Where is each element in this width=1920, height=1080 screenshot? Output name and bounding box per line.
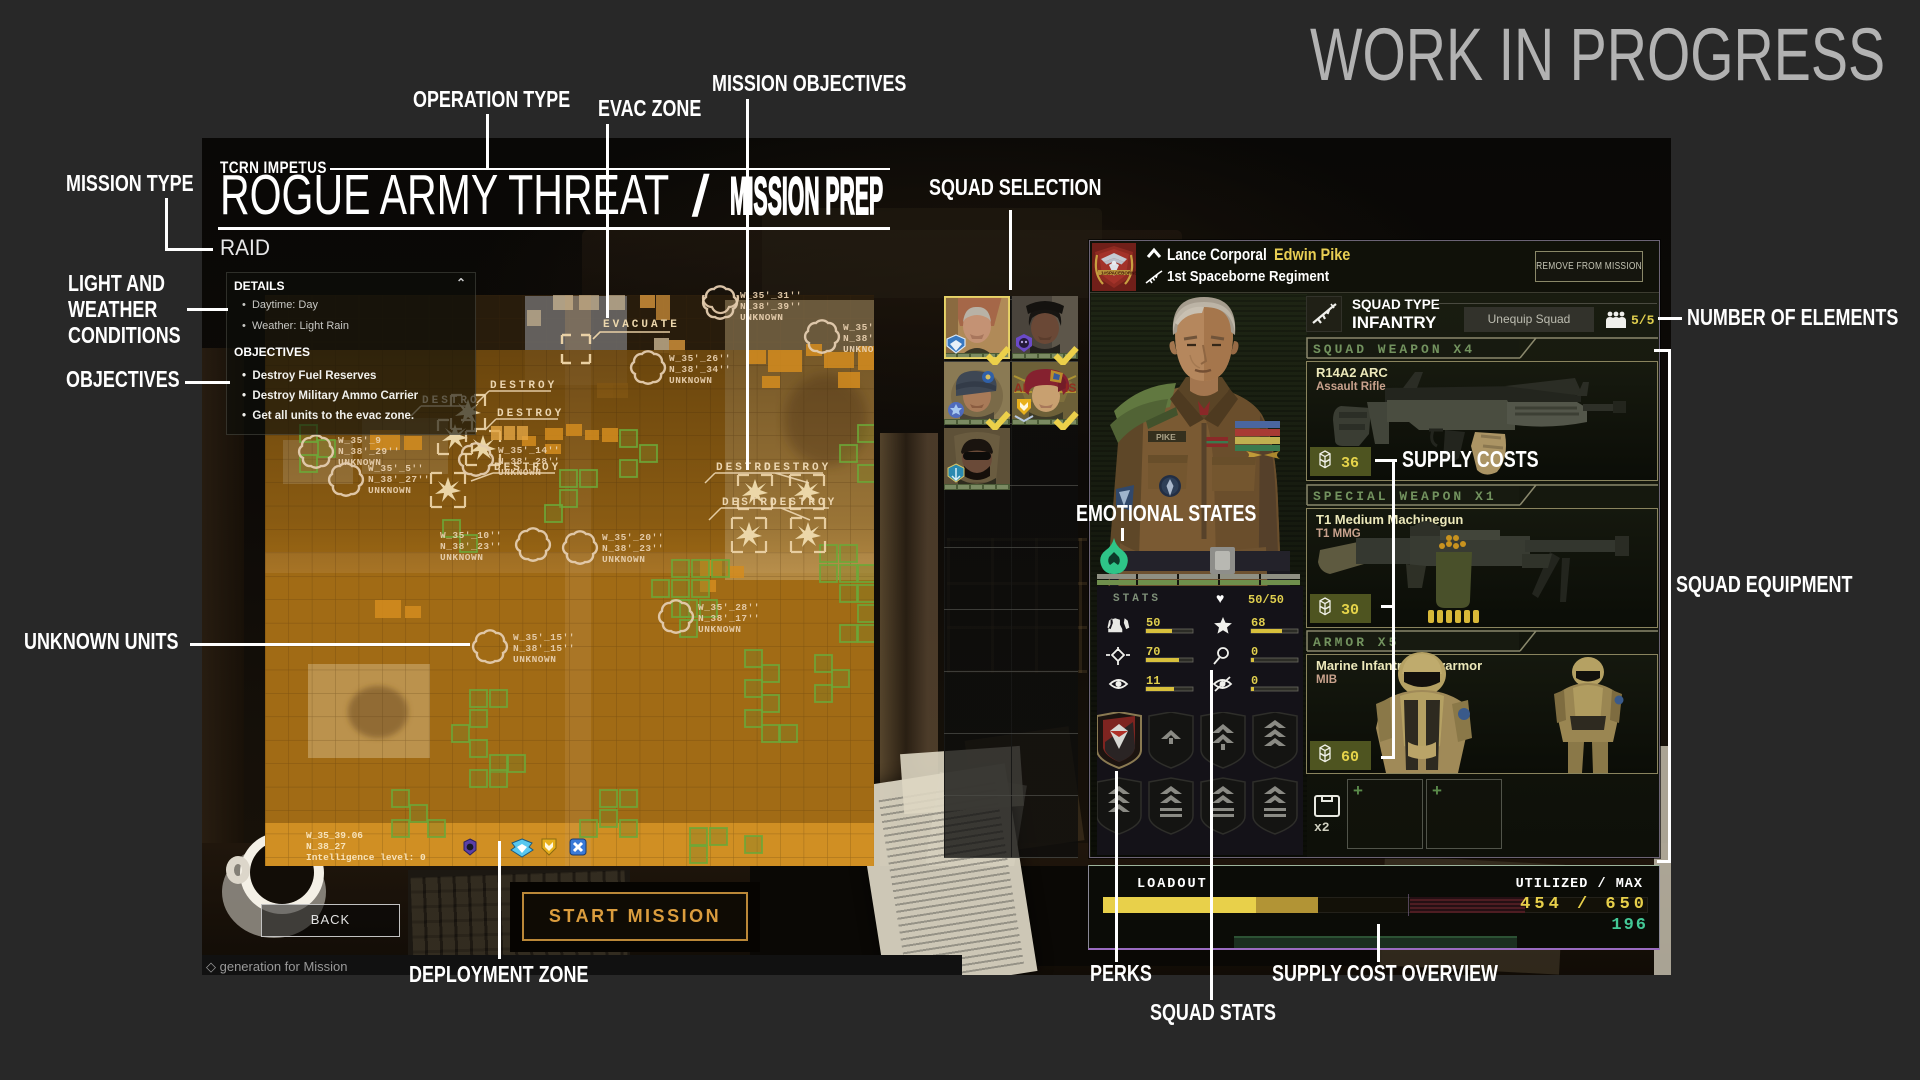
svg-text:W_35'_10'': W_35'_10'': [440, 530, 502, 541]
svg-text:N_38'_39'': N_38'_39'': [740, 301, 802, 312]
svg-text:UNKNOWN: UNKNOWN: [698, 624, 741, 635]
svg-text:W_35'_20'': W_35'_20'': [602, 532, 664, 543]
svg-text:W_35': W_35': [843, 322, 874, 333]
svg-text:Intelligence level: 0: Intelligence level: 0: [306, 852, 426, 863]
svg-text:UNKNOWN: UNKNOWN: [602, 554, 645, 565]
svg-text:0: 0: [1251, 645, 1258, 659]
svg-text:W_35_39.06: W_35_39.06: [306, 830, 363, 841]
svg-text:N_38'_15'': N_38'_15'': [513, 643, 575, 654]
svg-text:N_38'_28'': N_38'_28'': [498, 456, 560, 467]
svg-text:DESTROY: DESTROY: [770, 497, 837, 509]
svg-text:68: 68: [1251, 616, 1265, 630]
svg-text:AL: AL: [1014, 381, 1030, 395]
svg-text:0: 0: [1251, 674, 1258, 688]
svg-text:DESTROY: DESTROY: [764, 462, 831, 474]
svg-text:UNKNOWN: UNKNOWN: [498, 467, 541, 478]
svg-text:N_38'_27'': N_38'_27'': [368, 474, 430, 485]
svg-text:N_38'_34'': N_38'_34'': [669, 364, 731, 375]
svg-text:UNKNOWN: UNKNOWN: [368, 485, 411, 496]
svg-text:DESTROY: DESTROY: [497, 408, 564, 420]
svg-text:N_38_27: N_38_27: [306, 841, 346, 852]
svg-text:DESTROY: DESTROY: [490, 380, 557, 392]
svg-text:IS: IS: [1065, 381, 1076, 395]
svg-text:UNKNO: UNKNO: [843, 344, 874, 355]
svg-text:EVACUATE: EVACUATE: [603, 319, 680, 331]
svg-text:1#SPACEBORNE: 1#SPACEBORNE: [1101, 271, 1136, 276]
svg-text:W_35'_26'': W_35'_26'': [669, 353, 731, 364]
svg-text:N_38': N_38': [843, 333, 874, 344]
svg-text:11: 11: [1146, 674, 1160, 688]
svg-text:W_35'_14'': W_35'_14'': [498, 445, 560, 456]
svg-text:W_35'_28'': W_35'_28'': [698, 602, 760, 613]
svg-text:W_35'_9: W_35'_9: [338, 435, 381, 446]
svg-text:UNKNOWN: UNKNOWN: [440, 552, 483, 563]
svg-text:N_38'_23'': N_38'_23'': [440, 541, 502, 552]
svg-text:W_35'_15'': W_35'_15'': [513, 632, 575, 643]
svg-text:UNKNOWN: UNKNOWN: [669, 375, 712, 386]
svg-text:PIKE: PIKE: [1156, 432, 1176, 442]
svg-text:UNKNOWN: UNKNOWN: [513, 654, 556, 665]
svg-text:W_35'_5'': W_35'_5'': [368, 463, 424, 474]
svg-text:N_38'_23'': N_38'_23'': [602, 543, 664, 554]
svg-text:W_35'_31'': W_35'_31'': [740, 290, 802, 301]
svg-text:N_38'_17'': N_38'_17'': [698, 613, 760, 624]
svg-text:N_38'_29'': N_38'_29'': [338, 446, 400, 457]
svg-text:50: 50: [1146, 616, 1160, 630]
svg-text:70: 70: [1146, 645, 1160, 659]
